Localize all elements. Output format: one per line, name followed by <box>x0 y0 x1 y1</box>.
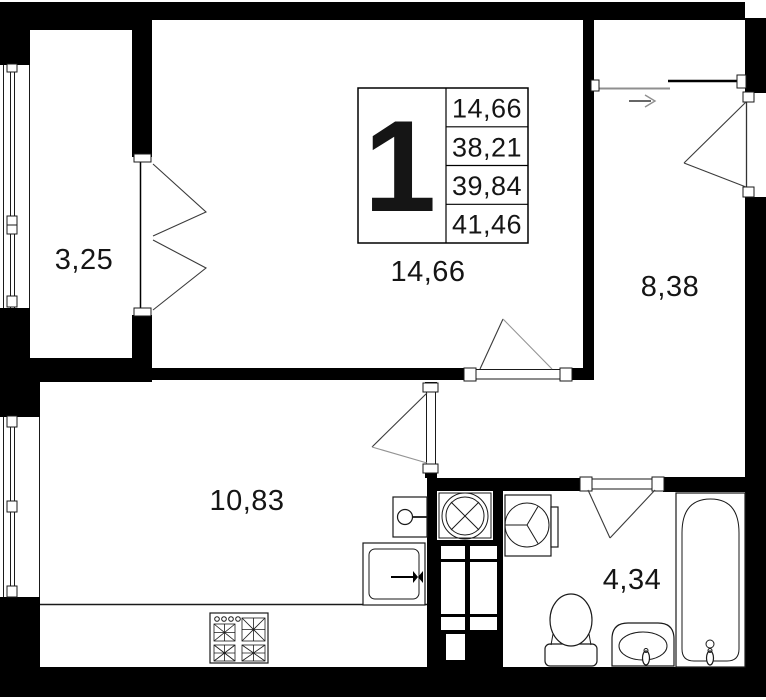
toilet-icon <box>545 594 597 666</box>
room-label-kitchen-living: 10,83 <box>209 485 284 517</box>
entrance-arrow-icon <box>629 95 655 107</box>
entrance-door <box>684 92 754 197</box>
vent-shaft-block <box>437 540 503 668</box>
room-label-bathroom: 4,34 <box>603 564 661 596</box>
kitchen-door <box>372 383 438 473</box>
room-label-hallway: 8,38 <box>641 271 699 303</box>
room-label-loggia: 3,25 <box>55 244 113 276</box>
unit-area-row-2: 38,21 <box>452 132 522 162</box>
kitchen-sink-icon <box>363 543 425 605</box>
loggia-window <box>4 64 30 308</box>
bathroom-door <box>580 477 664 538</box>
loggia-door <box>134 154 206 316</box>
unit-area-row-3: 39,84 <box>452 171 522 201</box>
unit-info-table: 1 14,66 38,21 39,84 41,46 <box>358 88 528 243</box>
wall-appliance-icon <box>393 497 427 537</box>
bathtub-icon <box>676 493 745 667</box>
bathroom-sink-icon <box>612 623 674 666</box>
living-room-door <box>464 319 572 381</box>
room-label-living-room: 14,66 <box>390 256 465 288</box>
washing-machine-icon <box>505 495 558 556</box>
kitchen-window <box>4 416 40 597</box>
sliding-door <box>591 75 746 91</box>
stove-icon <box>210 613 268 663</box>
unit-rooms-count: 1 <box>364 93 434 239</box>
floor-plan-canvas: 1 14,66 38,21 39,84 41,46 3,25 14,66 8,3… <box>0 0 766 700</box>
unit-area-row-1: 14,66 <box>452 94 522 124</box>
boiler-icon <box>439 493 491 539</box>
floor-plan: 1 14,66 38,21 39,84 41,46 3,25 14,66 8,3… <box>0 0 766 700</box>
unit-area-row-4: 41,46 <box>452 210 522 240</box>
